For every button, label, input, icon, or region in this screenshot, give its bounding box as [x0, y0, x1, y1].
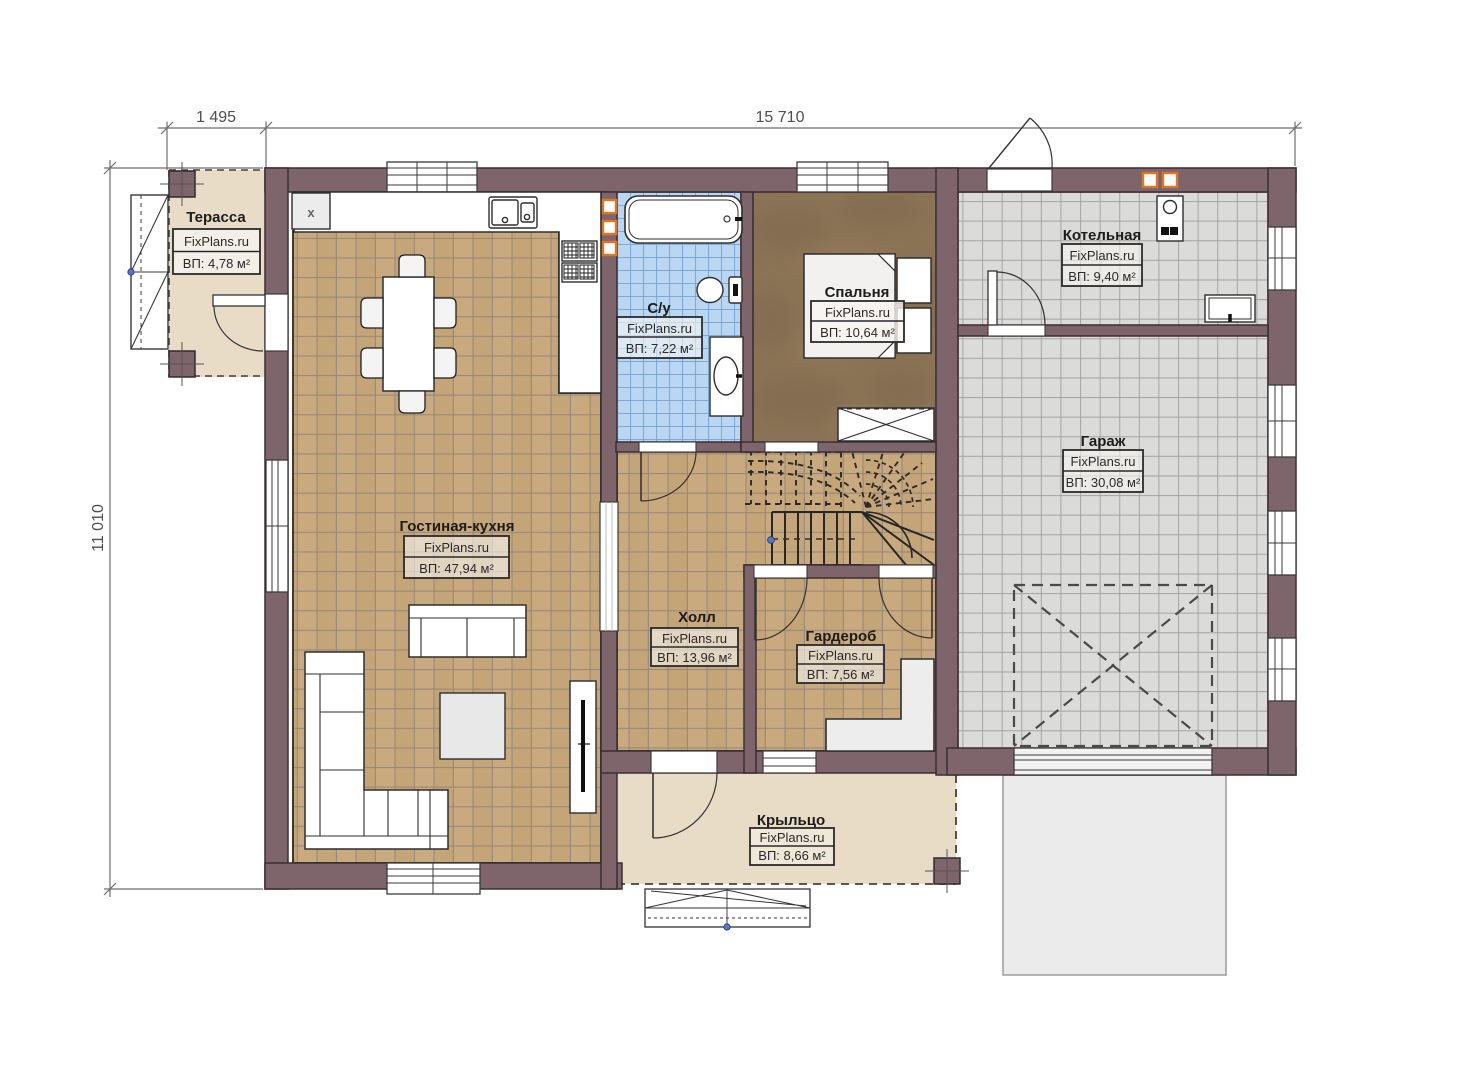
svg-text:FixPlans.ru: FixPlans.ru	[1069, 248, 1134, 263]
svg-text:ВП: 30,08 м²: ВП: 30,08 м²	[1066, 475, 1141, 490]
svg-text:Гардероб: Гардероб	[806, 628, 877, 645]
svg-text:FixPlans.ru: FixPlans.ru	[424, 540, 489, 555]
svg-text:Спальня: Спальня	[825, 284, 890, 301]
svg-text:Крыльцо: Крыльцо	[757, 812, 825, 829]
svg-text:FixPlans.ru: FixPlans.ru	[759, 830, 824, 845]
svg-text:Котельная: Котельная	[1063, 227, 1142, 244]
svg-text:ВП: 10,64 м²: ВП: 10,64 м²	[820, 325, 895, 340]
svg-text:Холл: Холл	[678, 609, 716, 626]
svg-text:ВП: 13,96 м²: ВП: 13,96 м²	[657, 650, 732, 665]
svg-text:FixPlans.ru: FixPlans.ru	[662, 631, 727, 646]
svg-text:FixPlans.ru: FixPlans.ru	[1070, 454, 1135, 469]
svg-text:ВП: 47,94 м²: ВП: 47,94 м²	[419, 561, 494, 576]
svg-text:ВП: 9,40 м²: ВП: 9,40 м²	[1068, 269, 1136, 284]
svg-text:ВП: 8,66 м²: ВП: 8,66 м²	[758, 848, 826, 863]
svg-text:x: x	[307, 205, 315, 220]
svg-text:11 010: 11 010	[90, 504, 107, 552]
svg-text:15 710: 15 710	[756, 109, 805, 126]
svg-text:Терасса: Терасса	[186, 209, 246, 226]
svg-text:1 495: 1 495	[196, 109, 236, 126]
svg-text:Гараж: Гараж	[1081, 433, 1126, 450]
svg-text:ВП: 4,78 м²: ВП: 4,78 м²	[183, 256, 251, 271]
svg-text:ВП: 7,56 м²: ВП: 7,56 м²	[807, 667, 875, 682]
svg-text:FixPlans.ru: FixPlans.ru	[825, 305, 890, 320]
svg-text:ВП: 7,22 м²: ВП: 7,22 м²	[626, 341, 694, 356]
svg-text:FixPlans.ru: FixPlans.ru	[808, 648, 873, 663]
svg-text:Гостиная-кухня: Гостиная-кухня	[400, 518, 515, 535]
svg-text:С/у: С/у	[647, 300, 671, 317]
svg-text:FixPlans.ru: FixPlans.ru	[627, 321, 692, 336]
svg-text:FixPlans.ru: FixPlans.ru	[184, 234, 249, 249]
